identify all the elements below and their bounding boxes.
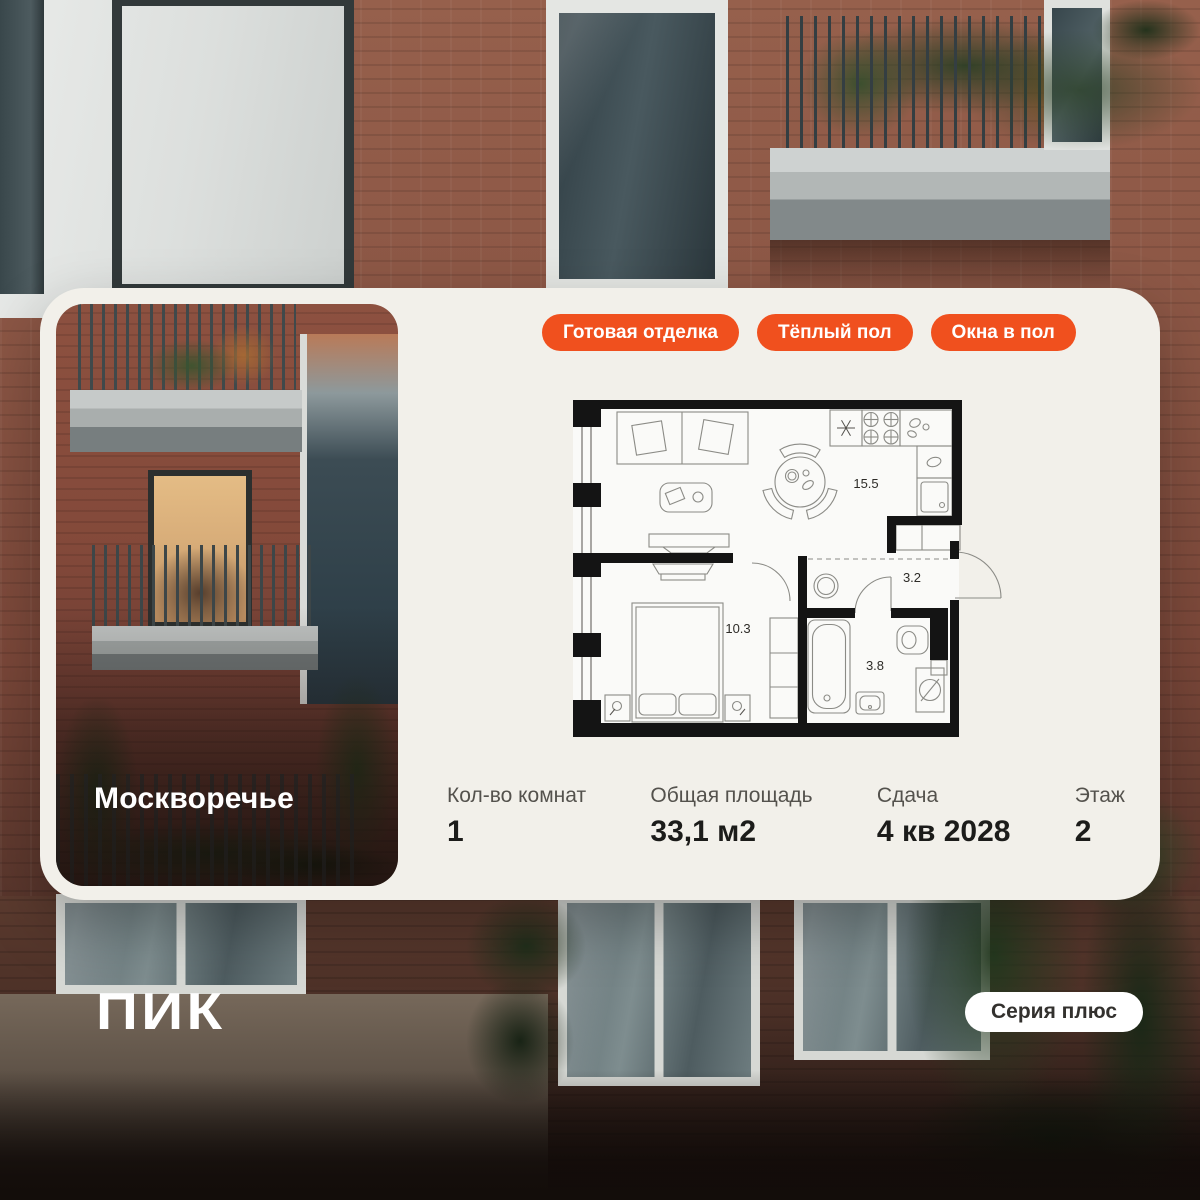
facade-window-bottom-left	[56, 894, 306, 994]
stat-floor: Этаж 2	[1075, 784, 1125, 849]
series-badge-label: Серия плюс	[991, 1000, 1117, 1024]
facade-window-center	[546, 0, 728, 292]
feature-badges: Готовая отделка Тёплый пол Окна в пол	[542, 314, 1076, 351]
stat-floor-label: Этаж	[1075, 784, 1125, 808]
stat-area: Общая площадь 33,1 м2	[650, 784, 812, 849]
apartment-card[interactable]: Москворечье Готовая отделка Тёплый пол О…	[40, 288, 1160, 900]
glass-balcony	[112, 0, 354, 294]
stat-completion-value: 4 кв 2028	[877, 815, 1011, 849]
apartment-stats: Кол-во комнат 1 Общая площадь 33,1 м2 Сд…	[447, 784, 1125, 849]
screenshot-stage: ПИК Серия плюс Москворечье Готовая отдел…	[0, 0, 1200, 1200]
room-area-bathroom: 3.8	[866, 658, 884, 673]
stat-area-label: Общая площадь	[650, 784, 812, 808]
badge-heated-floor: Тёплый пол	[757, 314, 913, 351]
floor-plan: 15.5 3.2 10.3 3.8	[565, 393, 1010, 738]
series-badge: Серия плюс	[965, 992, 1143, 1032]
room-area-bedroom: 10.3	[725, 621, 750, 636]
project-name: Москворечье	[94, 782, 294, 816]
stat-floor-value: 2	[1075, 815, 1125, 849]
pik-logo: ПИК	[96, 986, 225, 1038]
room-area-hallway: 3.2	[903, 570, 921, 585]
stat-area-value: 33,1 м2	[650, 815, 812, 849]
facade-window-bottom-center	[558, 894, 760, 1086]
room-area-kitchen: 15.5	[853, 476, 878, 491]
bottom-shadow-gradient	[0, 1070, 1200, 1200]
stat-completion-label: Сдача	[877, 784, 1011, 808]
tree-foliage-top-right	[930, 0, 1200, 150]
floor-plan-drawing: 15.5 3.2 10.3 3.8	[565, 393, 1010, 738]
facade-glass-strip	[0, 0, 44, 294]
balcony-slab	[770, 148, 1110, 240]
project-photo: Москворечье	[56, 304, 398, 886]
stat-rooms-value: 1	[447, 815, 586, 849]
badge-finishing: Готовая отделка	[542, 314, 739, 351]
stat-completion: Сдача 4 кв 2028	[877, 784, 1011, 849]
badge-floor-windows: Окна в пол	[931, 314, 1076, 351]
stat-rooms: Кол-во комнат 1	[447, 784, 586, 849]
stat-rooms-label: Кол-во комнат	[447, 784, 586, 808]
